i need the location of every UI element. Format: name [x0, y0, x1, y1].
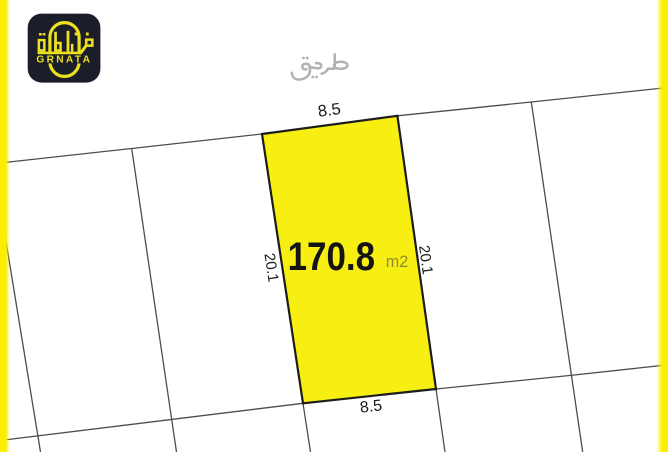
- svg-text:20.1: 20.1: [260, 252, 281, 283]
- svg-text:8.5: 8.5: [359, 397, 383, 416]
- svg-text:GRNATA: GRNATA: [36, 54, 92, 65]
- svg-text:m2: m2: [386, 253, 409, 271]
- svg-text:170.8: 170.8: [288, 234, 375, 279]
- svg-text:8.5: 8.5: [317, 100, 342, 121]
